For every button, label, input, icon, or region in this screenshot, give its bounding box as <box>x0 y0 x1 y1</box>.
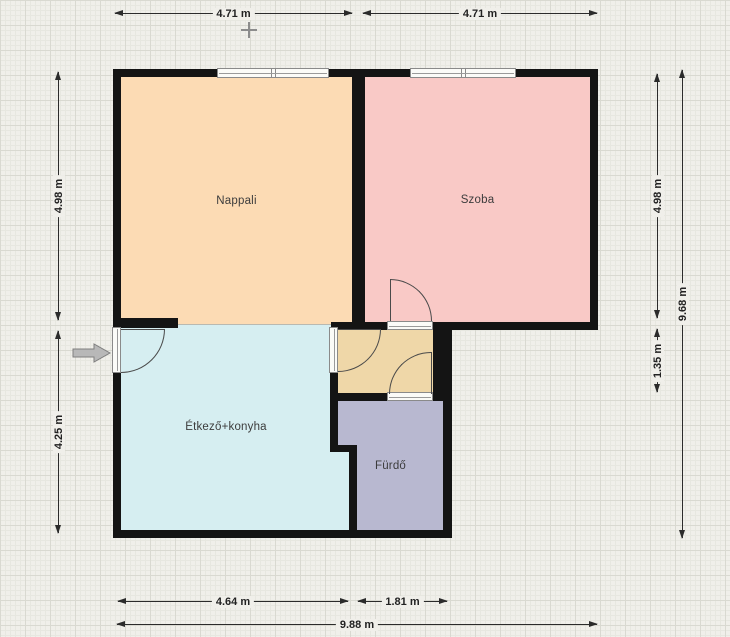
dim-bottom-overall[interactable]: 9.88 m <box>117 624 597 625</box>
kitchen-hall-door-frame[interactable] <box>329 327 338 373</box>
window-mullion <box>461 69 466 77</box>
wall-segment[interactable] <box>331 393 387 401</box>
wall-segment[interactable] <box>590 69 598 330</box>
wall-segment[interactable] <box>352 69 365 330</box>
wall-segment[interactable] <box>113 318 178 328</box>
dim-label: 1.35 m <box>652 339 664 381</box>
dim-right-middle[interactable]: 1.35 m <box>657 329 658 392</box>
dim-label: 9.68 m <box>677 283 689 325</box>
bathroom-door-leaf[interactable] <box>431 352 432 394</box>
wall-segment[interactable] <box>113 530 452 538</box>
room-label-etkezo-konyha: Étkező+konyha <box>185 421 267 433</box>
dim-left-upper[interactable]: 4.98 m <box>58 72 59 320</box>
wall-segment[interactable] <box>433 322 598 330</box>
wall-segment[interactable] <box>113 373 121 538</box>
wall-segment[interactable] <box>349 445 357 538</box>
dim-label: 1.81 m <box>381 596 423 608</box>
window[interactable] <box>217 68 329 78</box>
dim-label: 4.71 m <box>212 8 254 20</box>
dim-label: 4.98 m <box>652 175 664 217</box>
window[interactable] <box>410 68 516 78</box>
dim-right-upper[interactable]: 4.98 m <box>657 74 658 318</box>
wall-segment[interactable] <box>113 69 121 327</box>
room-label-nappali: Nappali <box>216 195 256 207</box>
entrance-arrow-icon <box>72 342 112 364</box>
wall-segment[interactable] <box>433 322 443 401</box>
floor-plan-canvas: Nappali Szoba Étkező+konyha Fürdő <box>0 0 730 637</box>
dim-bottom-middle[interactable]: 1.81 m <box>358 601 447 602</box>
dim-bottom-left[interactable]: 4.64 m <box>118 601 348 602</box>
window-mullion <box>271 69 276 77</box>
dim-label: 4.98 m <box>53 175 65 217</box>
dim-label: 4.64 m <box>212 596 254 608</box>
entrance-door-frame[interactable] <box>112 327 121 373</box>
dim-label: 4.25 m <box>53 411 65 453</box>
room-nappali[interactable]: Nappali <box>121 77 352 324</box>
room-boundary-line <box>178 324 331 325</box>
room-label-szoba: Szoba <box>461 194 495 206</box>
dim-label: 4.71 m <box>459 8 501 20</box>
wall-segment[interactable] <box>330 373 338 452</box>
dim-top-left[interactable]: 4.71 m <box>115 13 352 14</box>
wall-segment[interactable] <box>443 322 452 538</box>
dim-left-lower[interactable]: 4.25 m <box>58 331 59 533</box>
crosshair-icon <box>241 22 257 38</box>
dim-label: 9.88 m <box>336 619 378 631</box>
szoba-door-frame[interactable] <box>387 321 433 330</box>
dim-top-right[interactable]: 4.71 m <box>363 13 597 14</box>
dim-right-overall[interactable]: 9.68 m <box>682 70 683 538</box>
room-label-furdo: Fürdő <box>375 460 406 472</box>
